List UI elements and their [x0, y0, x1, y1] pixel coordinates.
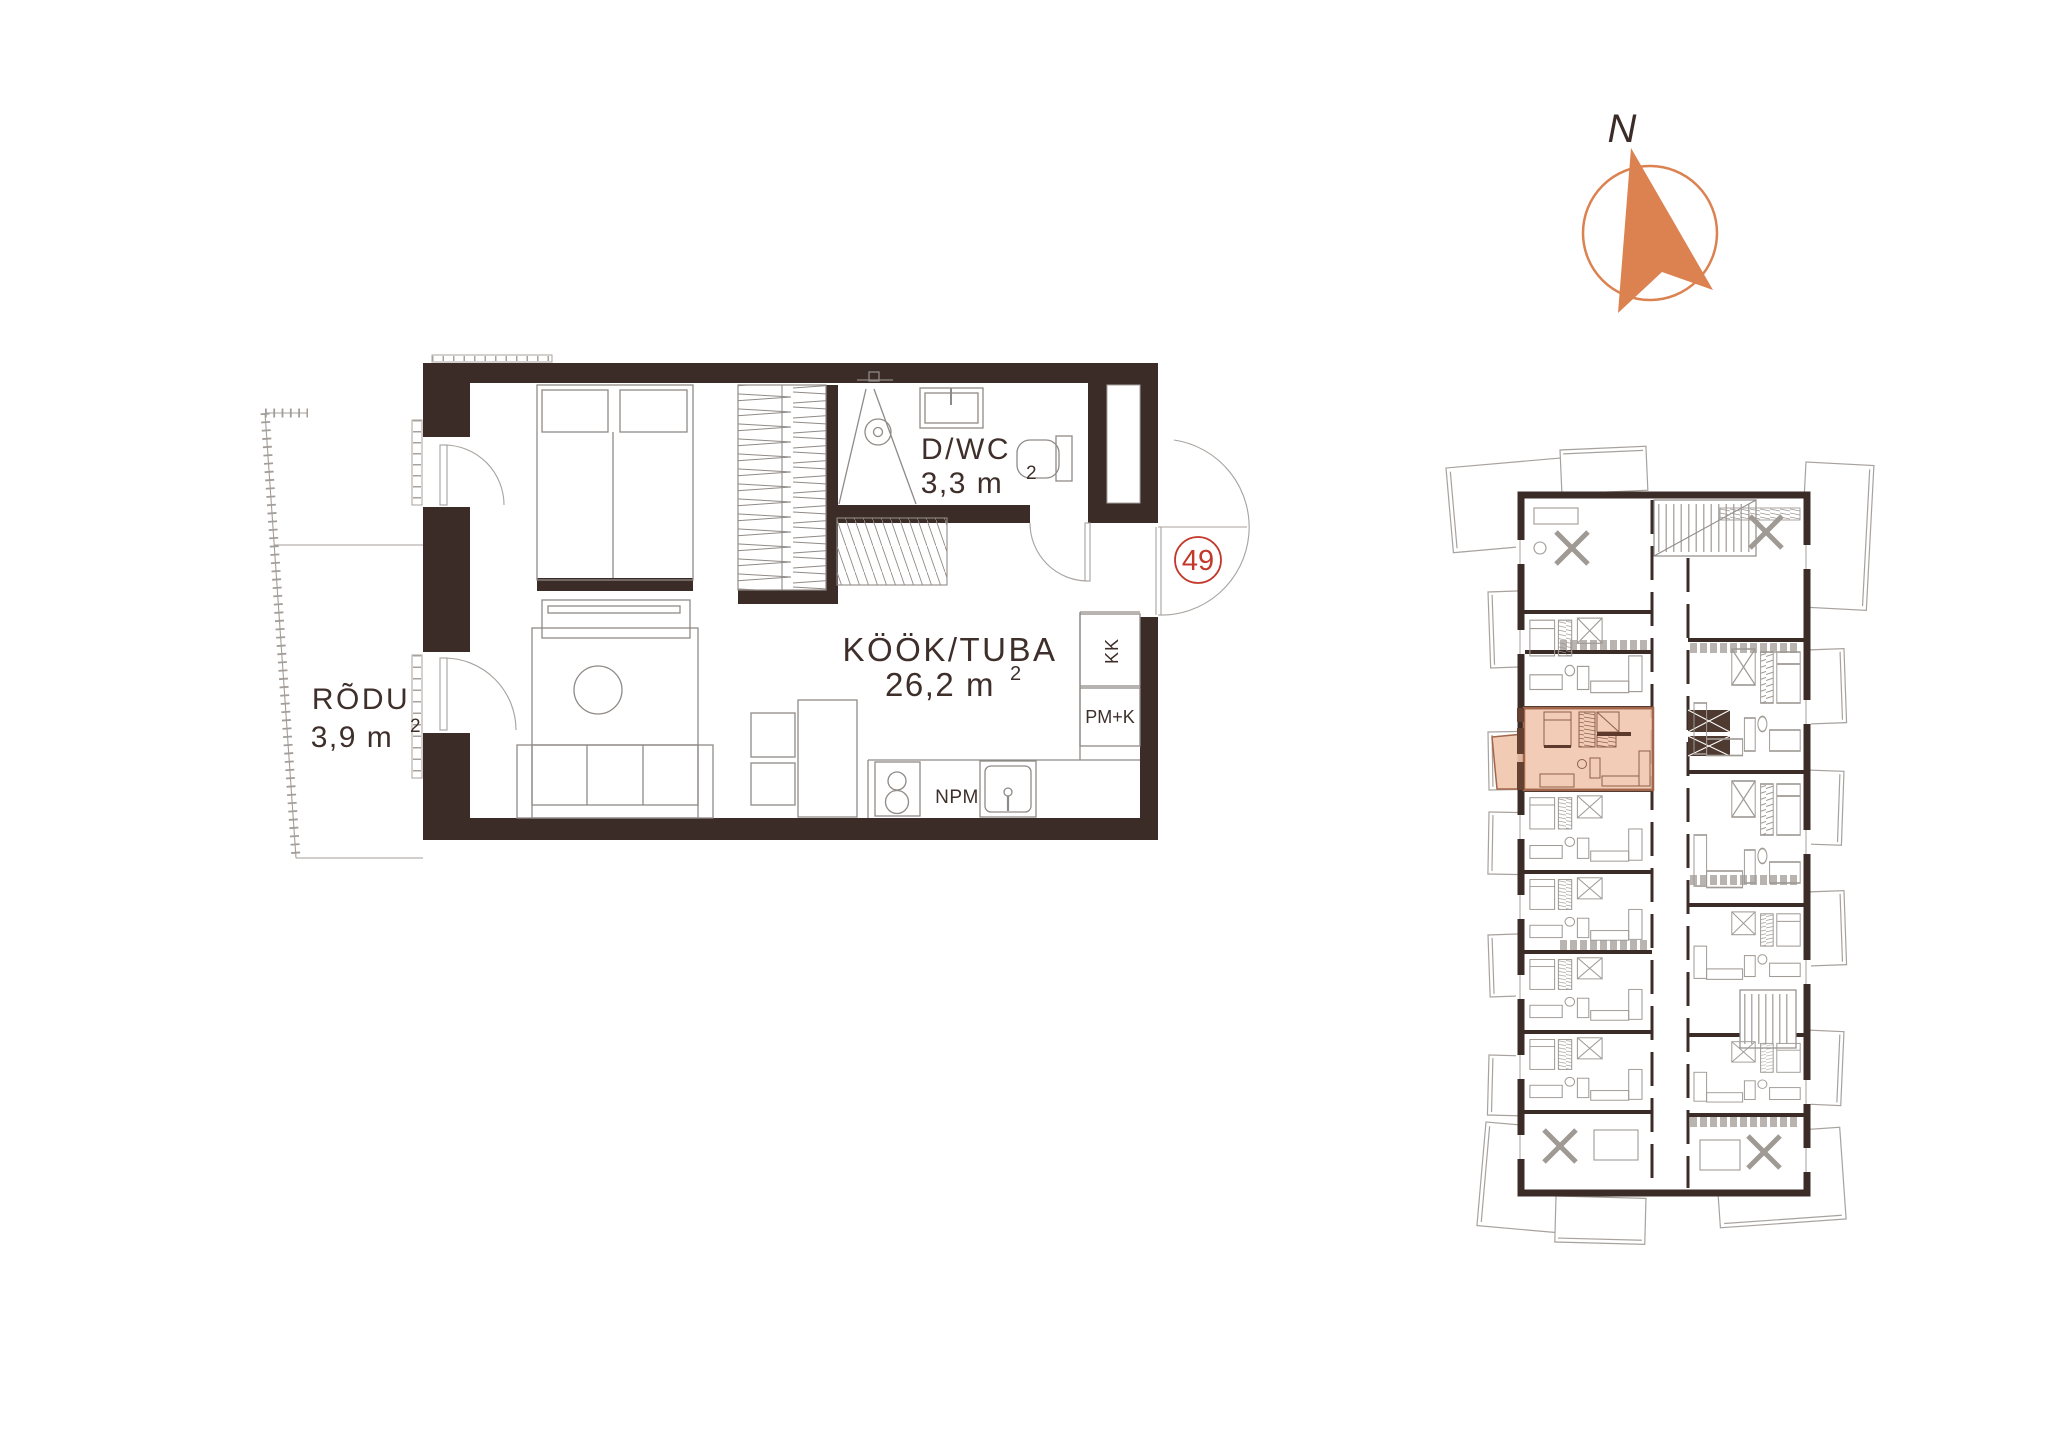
room-rodu-area: 3,9 m — [311, 721, 394, 754]
room-dwc-area-sup: 2 — [1026, 463, 1037, 484]
label-kk: KK — [1102, 638, 1122, 664]
room-dwc-name: D/WC — [921, 433, 1011, 466]
north-label: N — [1608, 107, 1637, 151]
room-rodu-name: RÕDU — [312, 682, 410, 716]
wardrobe-closet — [738, 385, 826, 590]
room-kook-area-sup: 2 — [1010, 663, 1021, 685]
room-kook-area: 26,2 m — [885, 666, 995, 703]
floor-plan-drawing: 49 D/WC 3,3 m 2 KÖÖK/TUBA 26,2 m 2 RÕDU … — [0, 0, 2048, 1449]
floor-plan-page: 49 D/WC 3,3 m 2 KÖÖK/TUBA 26,2 m 2 RÕDU … — [0, 0, 2048, 1449]
entry-mat — [837, 518, 947, 585]
stairwell-lower — [1740, 990, 1796, 1048]
unit-number: 49 — [1182, 545, 1214, 577]
room-dwc-area: 3,3 m — [921, 467, 1004, 500]
room-kook-name: KÖÖK/TUBA — [842, 631, 1057, 668]
label-pm-k: PM+K — [1085, 707, 1135, 727]
label-npm: NPM — [935, 787, 979, 808]
service-shaft — [1107, 385, 1140, 503]
room-rodu-area-sup: 2 — [410, 716, 421, 737]
